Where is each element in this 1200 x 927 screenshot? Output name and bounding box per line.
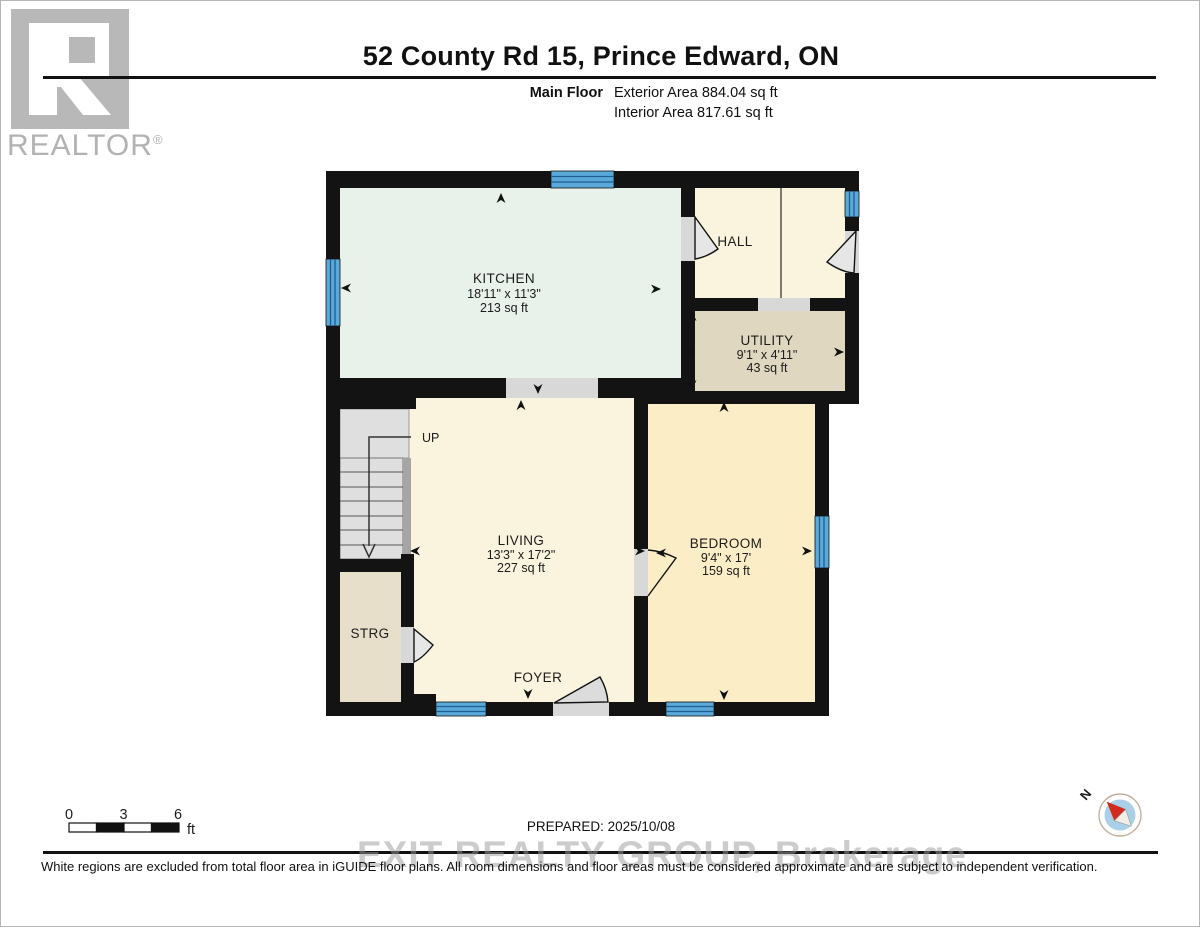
window-living-bottom	[436, 702, 486, 716]
window-kitchen-top	[551, 171, 614, 188]
living-area: 227 sq ft	[497, 561, 545, 575]
utility-area: 43 sq ft	[747, 361, 789, 375]
utility-dims: 9'1" x 4'11"	[737, 348, 798, 362]
utility-label: UTILITY	[740, 333, 793, 348]
window-hall-right	[845, 191, 859, 217]
stairs-up-label: UP	[422, 431, 439, 445]
bedroom-label: BEDROOM	[690, 536, 763, 551]
floorplan-page: REALTOR® 52 County Rd 15, Prince Edward,…	[0, 0, 1200, 927]
registered-symbol: ®	[153, 132, 164, 147]
window-kitchen-left	[326, 259, 340, 326]
realtor-wordmark: REALTOR®	[7, 129, 164, 163]
hall-label: HALL	[717, 234, 752, 249]
prepared-date: PREPARED: 2025/10/08	[1, 819, 1200, 834]
window-bedroom-right	[815, 516, 829, 568]
realtor-logo	[11, 9, 129, 134]
realtor-logo-icon	[11, 9, 129, 129]
stair-rail	[403, 458, 411, 559]
window-bedroom-bottom	[666, 702, 714, 716]
kitchen-label: KITCHEN	[473, 271, 535, 286]
disclaimer-text: White regions are excluded from total fl…	[41, 859, 1161, 874]
bedroom-dims: 9'4" x 17'	[701, 551, 751, 565]
floor-plan: KITCHEN 18'11" x 11'3" 213 sq ft HALL UT…	[1, 1, 1200, 927]
compass-north-label: N	[1077, 786, 1095, 803]
kitchen-dims: 18'11" x 11'3"	[467, 287, 541, 301]
realtor-wordmark-text: REALTOR	[7, 129, 153, 162]
kitchen-area: 213 sq ft	[480, 301, 528, 315]
header-divider	[43, 76, 1156, 79]
living-dims: 13'3" x 17'2"	[487, 548, 556, 562]
stairs	[340, 409, 411, 559]
bedroom-area: 159 sq ft	[702, 564, 750, 578]
foyer-label: FOYER	[514, 670, 563, 685]
living-label: LIVING	[498, 533, 545, 548]
storage-label: STRG	[350, 626, 389, 641]
